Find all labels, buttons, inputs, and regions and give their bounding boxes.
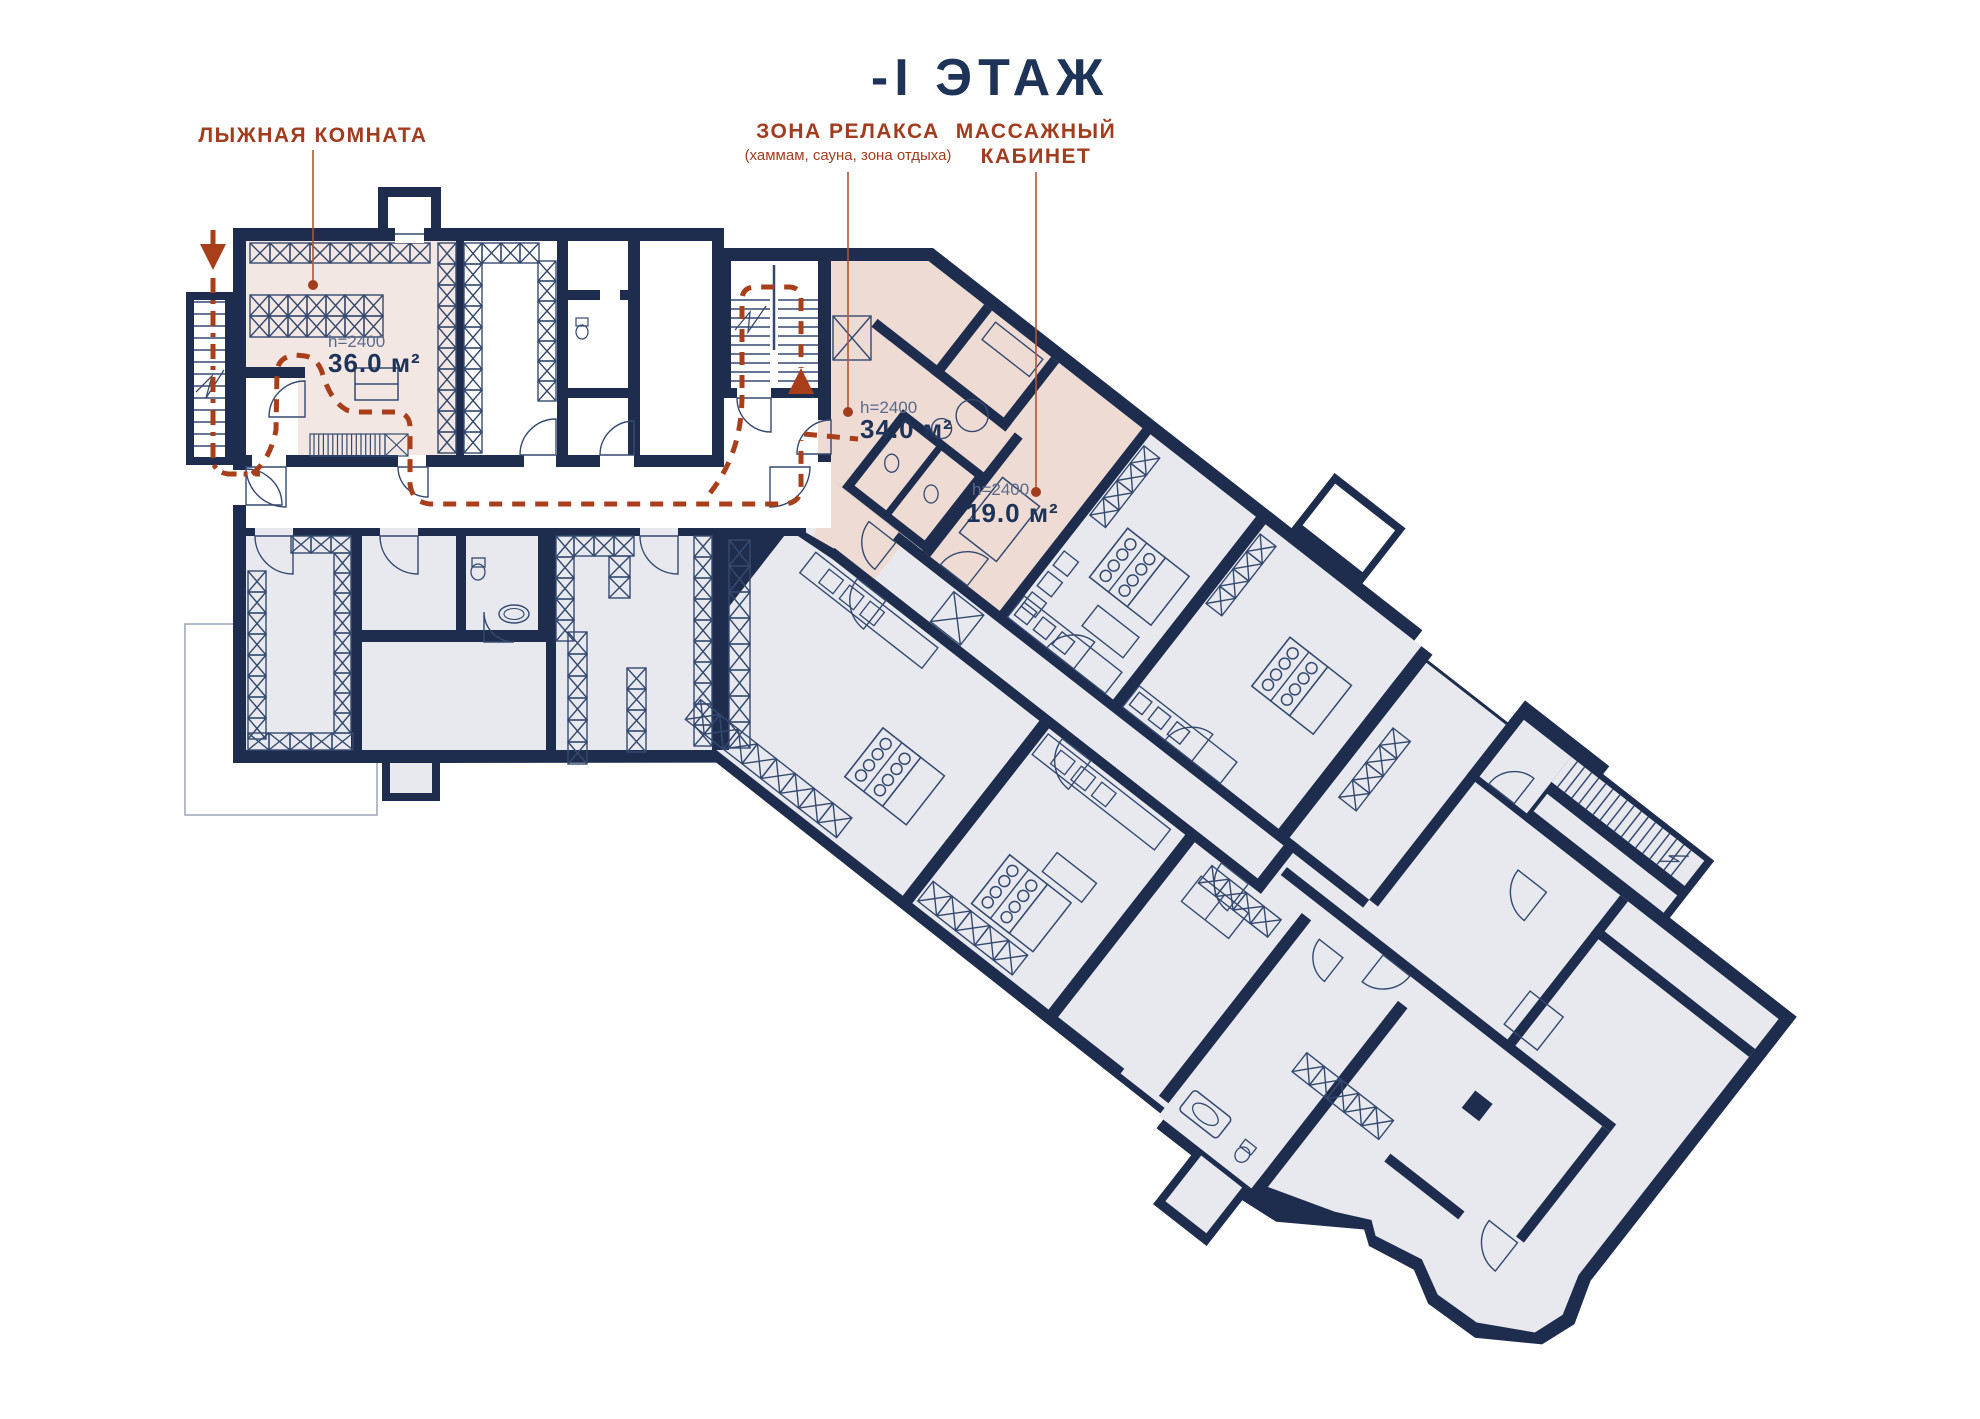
svg-text:(хаммам, сауна, зона отдыха): (хаммам, сауна, зона отдыха) [745,147,952,164]
svg-text:-I ЭТАЖ: -I ЭТАЖ [871,49,1109,107]
svg-text:КАБИНЕТ: КАБИНЕТ [981,145,1092,168]
svg-text:19.0 м²: 19.0 м² [966,498,1059,528]
svg-text:ЛЫЖНАЯ КОМНАТА: ЛЫЖНАЯ КОМНАТА [198,124,427,147]
svg-text:ЗОНА РЕЛАКСА: ЗОНА РЕЛАКСА [756,120,940,143]
svg-text:МАССАЖНЫЙ: МАССАЖНЫЙ [956,119,1116,143]
svg-text:34.0 м²: 34.0 м² [860,414,953,444]
svg-text:36.0 м²: 36.0 м² [328,348,421,378]
svg-text:h=2400: h=2400 [972,480,1029,499]
